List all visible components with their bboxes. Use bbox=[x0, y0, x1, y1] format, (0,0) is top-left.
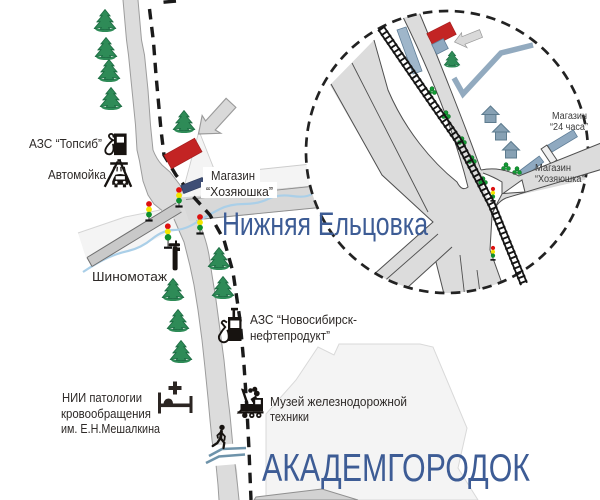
svg-text:им. Е.Н.Мешалкина: им. Е.Н.Мешалкина bbox=[61, 421, 161, 436]
svg-text:техники: техники bbox=[270, 409, 309, 424]
svg-text:НИИ патологии: НИИ патологии bbox=[62, 390, 142, 405]
svg-text:АКАДЕМГОРОДОК: АКАДЕМГОРОДОК bbox=[262, 447, 530, 490]
svg-text:“Хозяюшка”: “Хозяюшка” bbox=[206, 184, 273, 199]
svg-text:Магазин: Магазин bbox=[211, 168, 255, 183]
svg-text:Автомойка: Автомойка bbox=[48, 167, 107, 182]
svg-text:АЗС “Новосибирск-: АЗС “Новосибирск- bbox=[250, 312, 357, 327]
svg-text:Нижняя Ельцовка: Нижняя Ельцовка bbox=[222, 206, 428, 242]
svg-text:нефтепродукт”: нефтепродукт” bbox=[250, 328, 330, 343]
svg-text:кровообращения: кровообращения bbox=[61, 406, 151, 421]
svg-text:Музей железнодорожной: Музей железнодорожной bbox=[270, 394, 407, 409]
svg-text:“Хозяюшка”: “Хозяюшка” bbox=[535, 174, 585, 185]
svg-text:Магазин: Магазин bbox=[535, 163, 571, 174]
svg-text:“24 часа”: “24 часа” bbox=[550, 122, 588, 133]
svg-text:АЗС “Топсиб”: АЗС “Топсиб” bbox=[29, 136, 102, 151]
svg-text:Магазин: Магазин bbox=[552, 111, 587, 122]
svg-text:Шиномотаж: Шиномотаж bbox=[92, 269, 167, 284]
